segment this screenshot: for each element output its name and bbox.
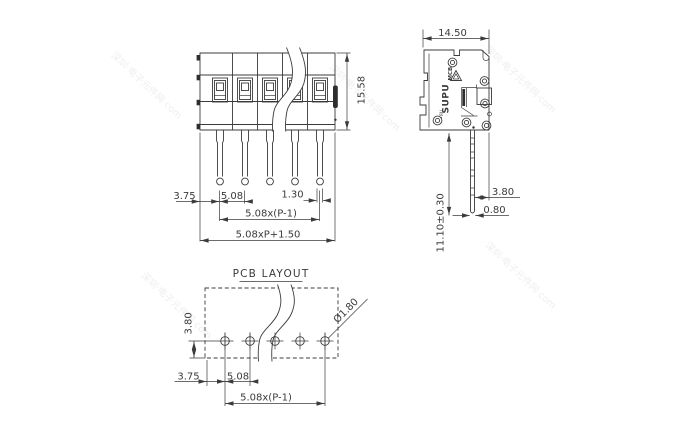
side-latch bbox=[333, 86, 338, 109]
front-view: 3.75 5.08 1.30 5.08x(P-1) 5.08xP+1.50 15… bbox=[173, 48, 367, 242]
dim-label-3-80-side: 3.80 bbox=[492, 187, 514, 198]
dim-label-height: 15.58 bbox=[357, 76, 368, 105]
dim-label-1-30: 1.30 bbox=[281, 190, 303, 201]
front-edge-keys bbox=[197, 55, 200, 129]
latch-dot bbox=[334, 119, 336, 121]
side-solder-pin bbox=[471, 130, 475, 213]
solder-pin bbox=[292, 130, 299, 185]
dim-label-14-50: 14.50 bbox=[438, 28, 467, 39]
small-hole bbox=[488, 112, 492, 116]
dim-label-0-80: 0.80 bbox=[483, 205, 505, 216]
solder-pin bbox=[317, 130, 324, 185]
terminal-window bbox=[263, 78, 278, 102]
dim-label-hole-diameter: Ø1.80 bbox=[331, 296, 361, 326]
brand-series: MCB bbox=[448, 67, 454, 81]
solder-pin bbox=[242, 130, 249, 185]
solder-pin bbox=[217, 130, 224, 185]
dim-label-total-width: 5.08xP+1.50 bbox=[236, 230, 301, 241]
small-dot bbox=[472, 126, 474, 128]
dim-label-3-80-pcb: 3.80 bbox=[184, 312, 195, 334]
mounting-hole bbox=[292, 333, 309, 350]
dim-label-3-75: 3.75 bbox=[173, 191, 195, 202]
front-bottom-dims bbox=[176, 133, 335, 242]
dim-label-pitch-span: 5.08x(P-1) bbox=[245, 209, 297, 220]
ur-recognition-mark: •ЯU bbox=[439, 110, 445, 119]
dim-label-pitch-span-pcb: 5.08x(P-1) bbox=[240, 393, 292, 404]
solder-pin bbox=[267, 130, 274, 185]
technical-drawing: 3.75 5.08 1.30 5.08x(P-1) 5.08xP+1.50 15… bbox=[0, 0, 680, 440]
terminal-window bbox=[213, 78, 228, 102]
rivet-circle bbox=[448, 58, 457, 67]
brand-logo: SUPU bbox=[442, 84, 452, 114]
dim-label-pin-length: 11.10±0.30 bbox=[436, 193, 447, 252]
pcb-layout-title: PCB LAYOUT bbox=[233, 268, 310, 280]
terminal-window bbox=[238, 78, 253, 102]
pcb-layout: PCB LAYOUT bbox=[175, 268, 368, 406]
dim-side-pin bbox=[449, 133, 520, 216]
dim-height bbox=[337, 53, 351, 130]
dim-label-5-08-pcb: 5.08 bbox=[227, 372, 249, 383]
clamp-spring bbox=[462, 89, 465, 106]
rivet-circle bbox=[482, 121, 491, 130]
drawing-canvas: 深圳·电子元件网·com 深圳·电子元件网·com 深圳·电子元件网·com 深… bbox=[0, 0, 680, 440]
rivet-circle bbox=[462, 118, 471, 127]
side-view: SUPU MCB •ЯU 14.50 bbox=[420, 28, 520, 253]
dim-label-5-08: 5.08 bbox=[221, 191, 243, 202]
rivet-circle bbox=[480, 77, 489, 86]
rivet-circle bbox=[481, 99, 490, 108]
break-band bbox=[258, 285, 294, 362]
dim-label-3-75-pcb: 3.75 bbox=[177, 372, 199, 383]
terminal-window bbox=[313, 78, 328, 102]
